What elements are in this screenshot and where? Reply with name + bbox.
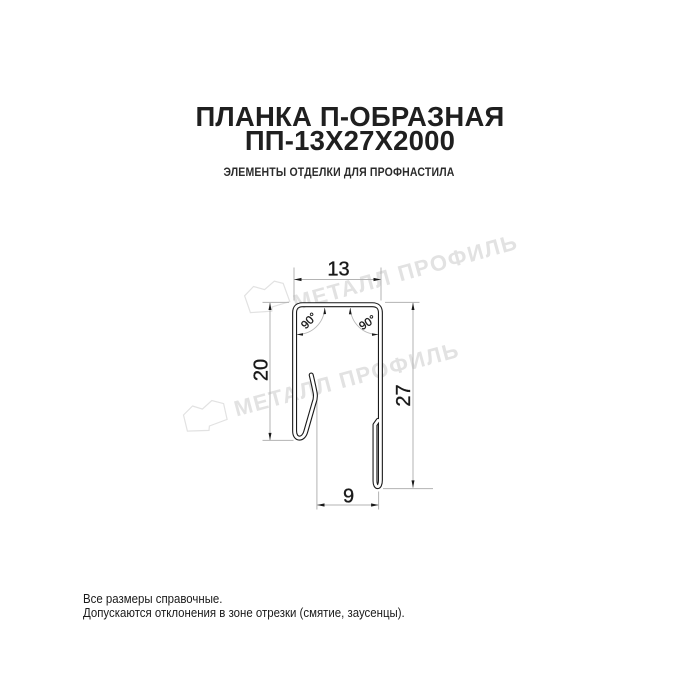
svg-text:13: 13 <box>327 259 349 281</box>
svg-text:90°: 90° <box>357 313 378 333</box>
svg-text:90°: 90° <box>299 311 320 332</box>
svg-text:20: 20 <box>251 359 273 381</box>
svg-text:27: 27 <box>393 384 415 406</box>
svg-text:9: 9 <box>343 486 354 508</box>
